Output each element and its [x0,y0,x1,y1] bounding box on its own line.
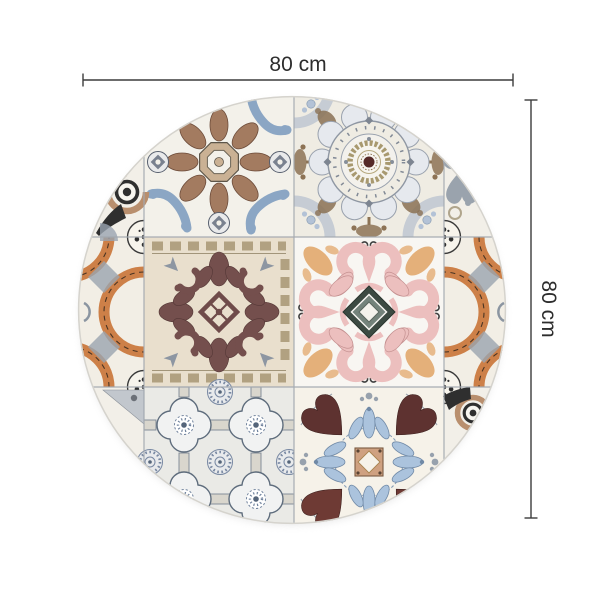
height-dimension [525,100,538,518]
diagram-canvas: 80 cm 80 cm [0,0,600,600]
tile-middle-pink-cross [294,237,444,387]
rug-image [0,80,600,545]
tile-bottom-left-quatrefoil [138,380,302,545]
width-label: 80 cm [269,53,326,76]
tile-middle-maroon-damask [144,237,294,387]
tile-right-edge-azulejo [428,221,600,404]
tile-bottom-right-hearts [294,387,444,537]
tile-left-edge-azulejo [0,221,161,404]
tile-top-right-medallion [294,87,445,238]
product-dimension-diagram: 80 cm 80 cm [0,0,600,600]
height-label: 80 cm [537,280,560,337]
